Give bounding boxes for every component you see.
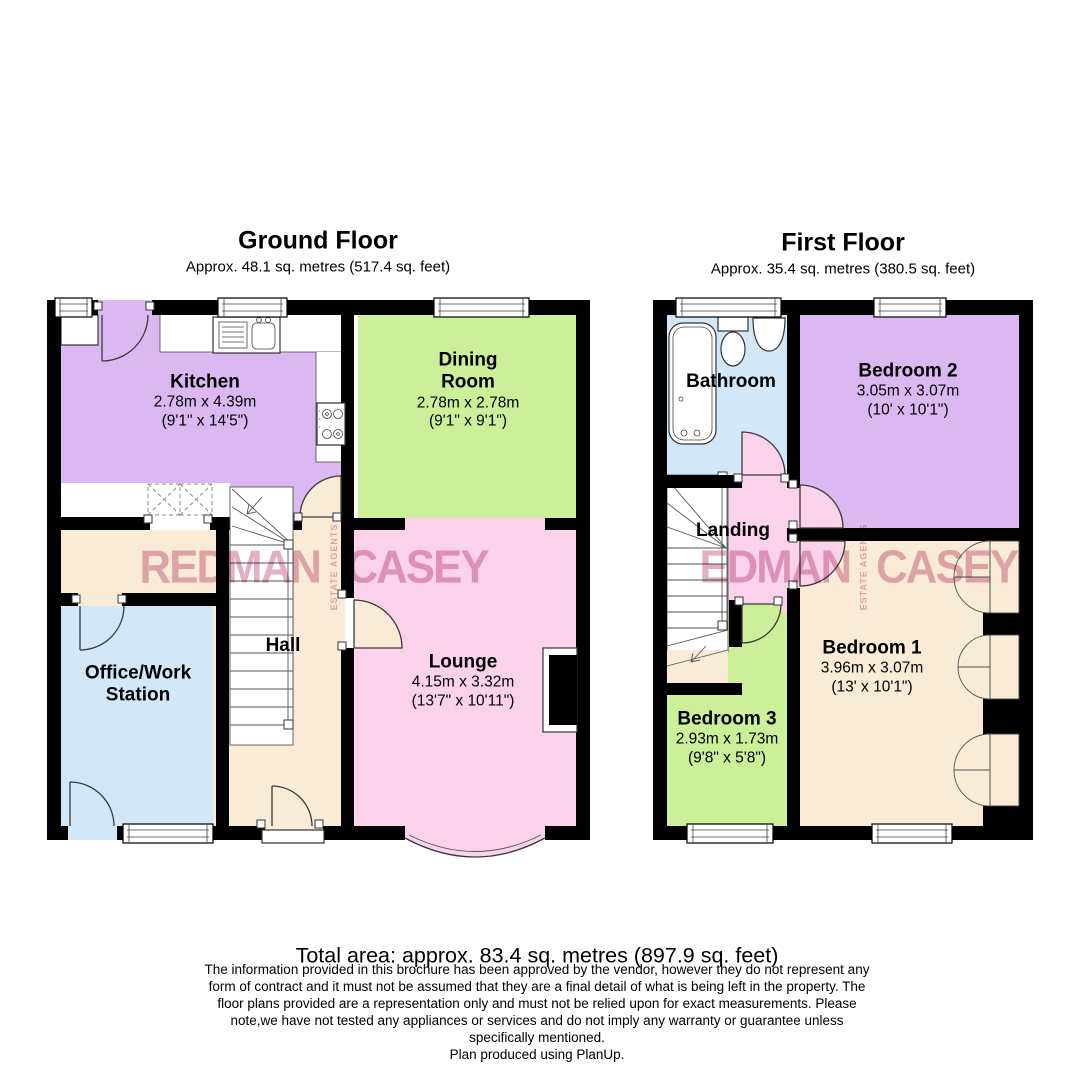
kitchen-hob	[317, 403, 345, 445]
first-floor-title: First Floor	[781, 229, 905, 258]
window	[55, 298, 92, 317]
utility-floor	[61, 530, 213, 593]
bedroom1-label: Bedroom 1 3.96m x 3.07m (13' x 10'1")	[821, 638, 924, 697]
bathroom-label: Bathroom	[686, 371, 776, 393]
floorplan-page: { "ground_floor": { "title": "Ground Flo…	[0, 0, 1080, 1080]
chimney-breast	[543, 648, 577, 732]
window	[872, 824, 952, 843]
office-label: Office/Work Station	[68, 663, 208, 708]
window	[687, 824, 773, 843]
window	[874, 298, 946, 317]
ground-stairs	[230, 487, 293, 745]
disclaimer-text: The information provided in this brochur…	[107, 961, 967, 1063]
first-floor-subtitle: Approx. 35.4 sq. metres (380.5 sq. feet)	[711, 261, 975, 278]
window	[123, 824, 213, 843]
produced-with-text: Plan produced using PlanUp.	[107, 1046, 967, 1063]
bedroom2-floor	[800, 315, 1019, 528]
front-door-step	[262, 830, 324, 843]
hall-label: Hall	[266, 635, 301, 657]
window	[218, 298, 287, 317]
ground-floor-title: Ground Floor	[238, 227, 398, 256]
bedroom3-label: Bedroom 3 2.93m x 1.73m (9'8" x 5'8")	[676, 709, 779, 768]
first-stairs	[667, 472, 728, 683]
lounge-label: Lounge 4.15m x 3.32m (13'7" x 10'11")	[412, 652, 515, 711]
bedroom2-label: Bedroom 2 3.05m x 3.07m (10' x 10'1")	[857, 361, 960, 420]
office-floor	[61, 606, 218, 826]
toilet	[718, 317, 748, 366]
window	[676, 298, 781, 317]
dining-room-label: Dining Room 2.78m x 2.78m (9'1" x 9'1")	[417, 349, 520, 430]
landing-label: Landing	[696, 520, 770, 542]
floorplan-canvas	[0, 0, 1080, 1080]
ground-floor-subtitle: Approx. 48.1 sq. metres (517.4 sq. feet)	[186, 259, 450, 276]
window	[434, 298, 529, 317]
kitchen-sink	[213, 317, 280, 353]
kitchen-label: Kitchen 2.78m x 4.39m (9'1" x 14'5")	[154, 372, 257, 431]
